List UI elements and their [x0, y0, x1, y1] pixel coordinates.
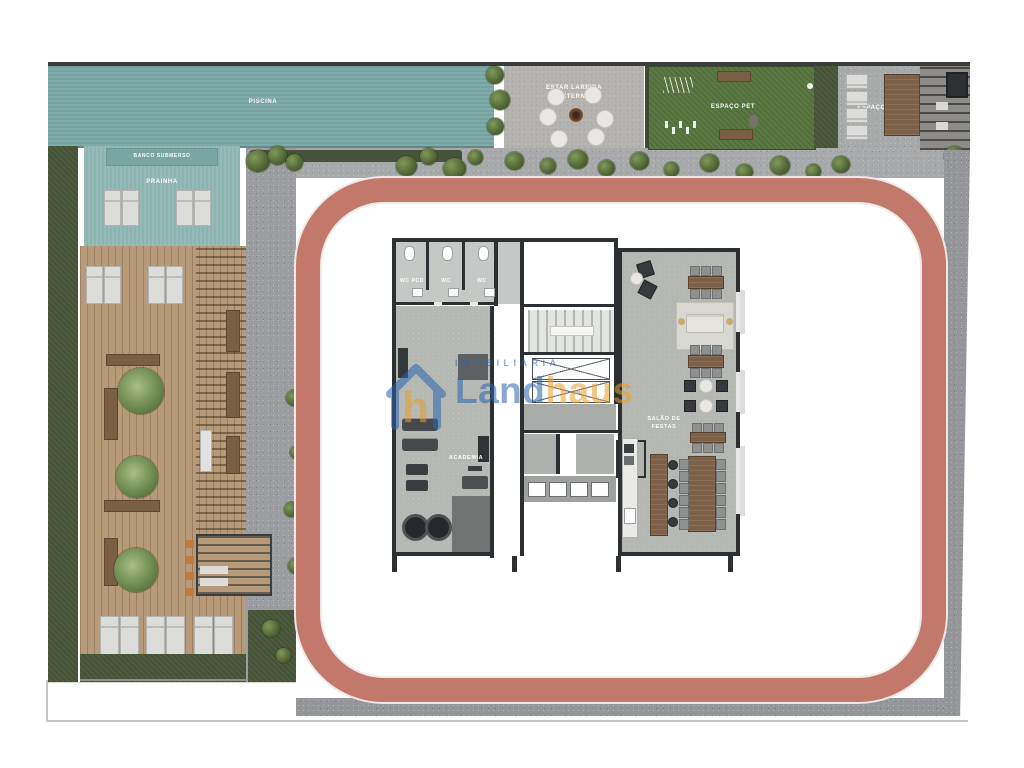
bush: [664, 162, 679, 177]
parrilla-chair: [846, 108, 868, 123]
wall: [556, 434, 560, 474]
gym-plate: [425, 514, 452, 541]
deck-lounger: [100, 616, 119, 658]
deck-lounger: [214, 616, 233, 658]
deck-box: [936, 102, 948, 110]
dining-chair: [712, 289, 722, 299]
dining-chair: [679, 519, 689, 530]
gym-mat: [452, 496, 490, 552]
dining-chair: [690, 345, 700, 355]
bush: [770, 156, 790, 175]
watermark-brand: Landhaus: [455, 372, 634, 409]
landhaus-house-icon: h: [385, 356, 447, 434]
deck-bench: [104, 388, 118, 440]
window-sill: [740, 290, 745, 334]
tree-icon: [118, 368, 164, 414]
pool-lounger: [104, 190, 121, 226]
dining-chair: [679, 495, 689, 506]
pool-lounger: [176, 190, 193, 226]
brand-part-land: Land: [455, 370, 545, 411]
pet-area: ESPAÇO PET: [648, 66, 816, 150]
deck-lounger: [194, 616, 213, 658]
agility-post: [679, 121, 682, 128]
stool-cushion: [186, 572, 194, 580]
toilet-icon: [478, 246, 489, 261]
bush: [246, 150, 270, 172]
tree-icon: [114, 548, 158, 592]
bush: [468, 150, 483, 165]
ball-icon: [807, 83, 813, 89]
pet-bench: [717, 71, 751, 82]
deck-lounger: [104, 266, 121, 304]
toilet-icon: [442, 246, 453, 261]
wall: [462, 242, 465, 290]
agility-post: [686, 127, 689, 134]
fireplace-lounge-label: ESTAR LAREIRAEXTERNA: [524, 84, 624, 101]
southwest-boundary-line: [46, 680, 48, 722]
cafe-chair: [716, 380, 728, 392]
dining-chair: [716, 507, 726, 518]
stair-landing-strip: [550, 326, 594, 336]
deck-edge: [80, 679, 246, 681]
wc-label: WC: [434, 278, 458, 285]
dining-chair: [701, 345, 711, 355]
deck-lounger: [146, 616, 165, 658]
gym-label: ACADEMIA: [436, 455, 496, 463]
dining-chair: [690, 289, 700, 299]
planter-strip: [814, 66, 838, 148]
step-tread: [200, 566, 228, 574]
submerged-bench: BANCO SUBMERSO: [106, 148, 218, 166]
parrilla-chair: [846, 74, 868, 89]
lounge-chair: [547, 88, 565, 106]
pouf: [678, 318, 685, 325]
side-table: [630, 272, 643, 285]
gym-bike: [406, 480, 428, 491]
lounge-chair: [596, 110, 614, 128]
dining-chair: [714, 443, 724, 453]
deck-south-grass: [80, 654, 246, 682]
dining-chair: [679, 471, 689, 482]
dining-chair: [690, 368, 700, 378]
gym-bike: [406, 464, 428, 475]
private-area-blank: [524, 242, 616, 304]
window-sill: [740, 370, 745, 414]
bush: [443, 158, 466, 179]
bush: [490, 90, 510, 110]
prainha-area: BANCO SUBMERSO PRAINHA: [84, 146, 240, 246]
svg-text:h: h: [402, 383, 429, 432]
wc-pcd-label: WC PCD: [396, 278, 428, 285]
oven-icon: [624, 456, 634, 465]
wall-stub: [392, 556, 397, 572]
dining-chair: [716, 495, 726, 506]
parrilla-chair: [846, 125, 868, 140]
agility-post: [693, 121, 696, 128]
door-gap: [470, 302, 478, 305]
cafe-table: [699, 399, 713, 413]
outdoor-fireplace-lounge: ESTAR LAREIRAEXTERNA: [504, 66, 644, 148]
dining-table: [688, 276, 724, 289]
deck-lounger: [166, 616, 185, 658]
prainha-label: PRAINHA: [112, 178, 212, 187]
washing-machine: [528, 482, 546, 497]
washing-machine: [591, 482, 609, 497]
dining-chair: [716, 483, 726, 494]
cafe-table: [699, 379, 713, 393]
dining-chair: [679, 483, 689, 494]
bush: [630, 152, 649, 170]
pergola-counter: [200, 430, 212, 472]
south-boundary-line: [46, 720, 968, 722]
stool-cushion: [186, 588, 194, 596]
west-grass-strip: [48, 146, 78, 682]
bush: [700, 154, 719, 172]
parrilla-table: [884, 74, 920, 136]
bar-stool: [668, 517, 678, 527]
dining-chair: [679, 507, 689, 518]
dining-table: [688, 355, 724, 368]
bush: [268, 146, 287, 165]
cafe-chair: [716, 400, 728, 412]
wall: [618, 248, 740, 252]
dining-chair: [712, 266, 722, 276]
bush: [598, 160, 615, 176]
dining-chair: [716, 519, 726, 530]
dining-chair: [712, 345, 722, 355]
watermark-tagline: IMOBILIÁRIA: [455, 358, 634, 368]
wall-stub: [512, 556, 517, 572]
pergola-furniture: [226, 310, 240, 352]
wall-stub: [616, 556, 621, 572]
submerged-bench-label: BANCO SUBMERSO: [107, 153, 217, 160]
dining-chair: [701, 289, 711, 299]
parrilla-chair: [846, 91, 868, 106]
parrilla-area: ESPAÇO PARRILLA: [838, 66, 970, 150]
bush: [806, 164, 821, 179]
sink-icon: [624, 508, 636, 524]
wall: [392, 302, 496, 305]
stool-cushion: [186, 540, 194, 548]
sink-icon: [412, 288, 423, 297]
sofa: [686, 314, 724, 333]
gym-bench: [462, 476, 488, 489]
service-room-floor: [576, 434, 614, 474]
wall-stub: [728, 556, 733, 572]
sink-icon: [484, 288, 495, 297]
bush: [487, 118, 504, 135]
tree-icon: [116, 456, 158, 498]
pergola-furniture: [226, 436, 240, 474]
service-room-floor: [524, 434, 556, 474]
dining-chair: [679, 459, 689, 470]
lounge-chair: [550, 130, 568, 148]
cafe-chair: [684, 400, 696, 412]
dining-chair: [716, 459, 726, 470]
toilet-icon: [404, 246, 415, 261]
bush: [286, 154, 303, 171]
bush: [540, 158, 556, 174]
cafe-chair: [684, 380, 696, 392]
wall: [520, 304, 618, 307]
deck-lounger: [120, 616, 139, 658]
bush: [420, 148, 437, 165]
pet-bench: [719, 129, 753, 140]
deck-bench: [104, 500, 160, 512]
bush: [505, 152, 524, 170]
deck-lounger: [86, 266, 103, 304]
washing-machine: [549, 482, 567, 497]
bush: [486, 66, 504, 84]
east-pavement: [944, 150, 970, 716]
pet-area-label: ESPAÇO PET: [693, 103, 773, 112]
pool-lounger: [122, 190, 139, 226]
stairwell: [528, 310, 614, 352]
lounge-chair: [587, 128, 605, 146]
bush: [262, 620, 280, 637]
pool-area: PISCINA: [48, 66, 494, 148]
wc-label: WC: [470, 278, 494, 285]
pool-lounger: [194, 190, 211, 226]
grill-icon: [946, 72, 968, 98]
brand-part-haus: haus: [545, 370, 633, 411]
wall: [392, 552, 494, 556]
dining-chair: [703, 443, 713, 453]
bush: [832, 156, 850, 173]
deck-lounger: [148, 266, 165, 304]
dining-chair: [701, 266, 711, 276]
pool-label: PISCINA: [198, 98, 328, 107]
pergola-furniture: [226, 372, 240, 418]
bar-island: [650, 454, 668, 536]
window-sill: [740, 446, 745, 516]
grass-end-line: [48, 682, 296, 683]
bush: [276, 648, 291, 663]
cooktop-icon: [624, 444, 634, 453]
dog-icon: [749, 115, 758, 128]
dining-chair: [692, 443, 702, 453]
sink-icon: [448, 288, 459, 297]
bush: [396, 156, 417, 176]
deck-steps-structure: [196, 534, 272, 596]
agility-sunburst-icon: [663, 77, 693, 93]
deck-bench: [106, 354, 160, 366]
agility-post: [672, 127, 675, 134]
watermark: h IMOBILIÁRIA Landhaus: [385, 350, 645, 440]
lounge-chair: [584, 86, 602, 104]
bush: [568, 150, 588, 169]
floor-plan: PISCINA BANCO SUBMERSO PRAINHA ESTAR LAR…: [0, 0, 1024, 768]
deck-box: [936, 122, 948, 130]
parrilla-deck-slats: [920, 66, 970, 150]
agility-post: [665, 121, 668, 128]
fire-pit-icon: [569, 108, 583, 122]
wall: [618, 552, 740, 556]
bar-stool: [668, 479, 678, 489]
dining-chair: [712, 368, 722, 378]
long-dining-table: [688, 456, 716, 532]
hall-floor: [498, 242, 522, 304]
step-tread: [200, 578, 228, 586]
dining-chair: [690, 266, 700, 276]
dining-table: [690, 432, 726, 443]
bar-stool: [668, 460, 678, 470]
door-gap: [434, 302, 442, 305]
deck-lounger: [166, 266, 183, 304]
west-walkway: [246, 148, 296, 682]
bar-stool: [668, 498, 678, 508]
washing-machine: [570, 482, 588, 497]
stool-cushion: [186, 556, 194, 564]
gym-dumbbells: [468, 466, 482, 471]
dining-chair: [701, 368, 711, 378]
pouf: [726, 318, 733, 325]
dining-chair: [716, 471, 726, 482]
lounge-chair: [539, 108, 557, 126]
